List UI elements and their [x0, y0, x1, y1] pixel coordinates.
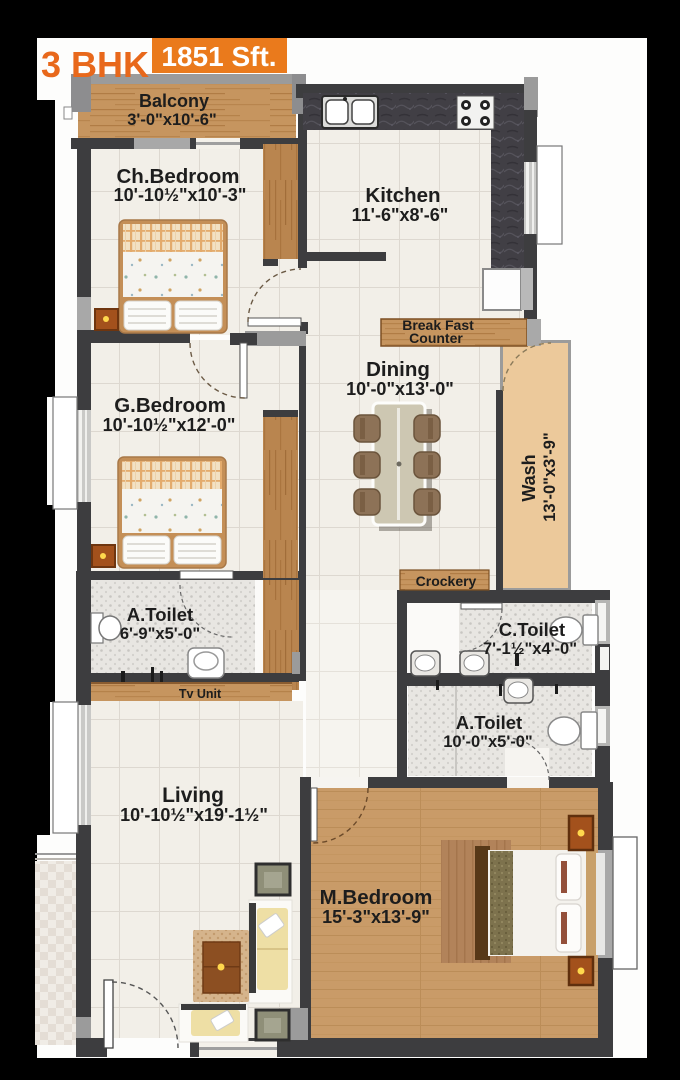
- svg-text:10'-10½"x10'-3": 10'-10½"x10'-3": [114, 185, 247, 205]
- svg-text:Kitchen: Kitchen: [365, 184, 440, 207]
- svg-text:3 BHK: 3 BHK: [41, 44, 149, 85]
- svg-text:A.Toilet: A.Toilet: [127, 604, 193, 625]
- svg-text:Dining: Dining: [366, 358, 430, 381]
- svg-text:6'-9"x5'-0": 6'-9"x5'-0": [120, 625, 200, 643]
- svg-text:Balcony: Balcony: [139, 91, 209, 111]
- svg-text:10'-10½"x19'-1½": 10'-10½"x19'-1½": [120, 805, 268, 825]
- svg-text:C.Toilet: C.Toilet: [499, 619, 565, 640]
- svg-text:15'-3"x13'-9": 15'-3"x13'-9": [322, 907, 430, 927]
- svg-text:Living: Living: [162, 784, 224, 807]
- svg-text:10'-0"x13'-0": 10'-0"x13'-0": [346, 379, 454, 399]
- svg-text:Tv Unit: Tv Unit: [179, 687, 222, 701]
- svg-text:1851 Sft.: 1851 Sft.: [161, 41, 276, 72]
- svg-text:Crockery: Crockery: [416, 573, 477, 589]
- svg-text:10'-10½"x12'-0": 10'-10½"x12'-0": [103, 415, 236, 435]
- svg-text:G.Bedroom: G.Bedroom: [114, 394, 226, 417]
- svg-text:M.Bedroom: M.Bedroom: [320, 886, 433, 909]
- svg-text:3'-0"x10'-6": 3'-0"x10'-6": [127, 111, 217, 129]
- svg-text:Wash: Wash: [519, 454, 539, 501]
- svg-text:7'-1½"x4'-0": 7'-1½"x4'-0": [483, 640, 577, 658]
- svg-text:11'-6"x8'-6": 11'-6"x8'-6": [352, 205, 449, 225]
- svg-text:10'-0"x5'-0": 10'-0"x5'-0": [443, 733, 533, 751]
- svg-text:A.Toilet: A.Toilet: [456, 712, 522, 733]
- svg-text:13'-0"x3'-9": 13'-0"x3'-9": [541, 432, 559, 522]
- svg-text:Counter: Counter: [409, 330, 463, 346]
